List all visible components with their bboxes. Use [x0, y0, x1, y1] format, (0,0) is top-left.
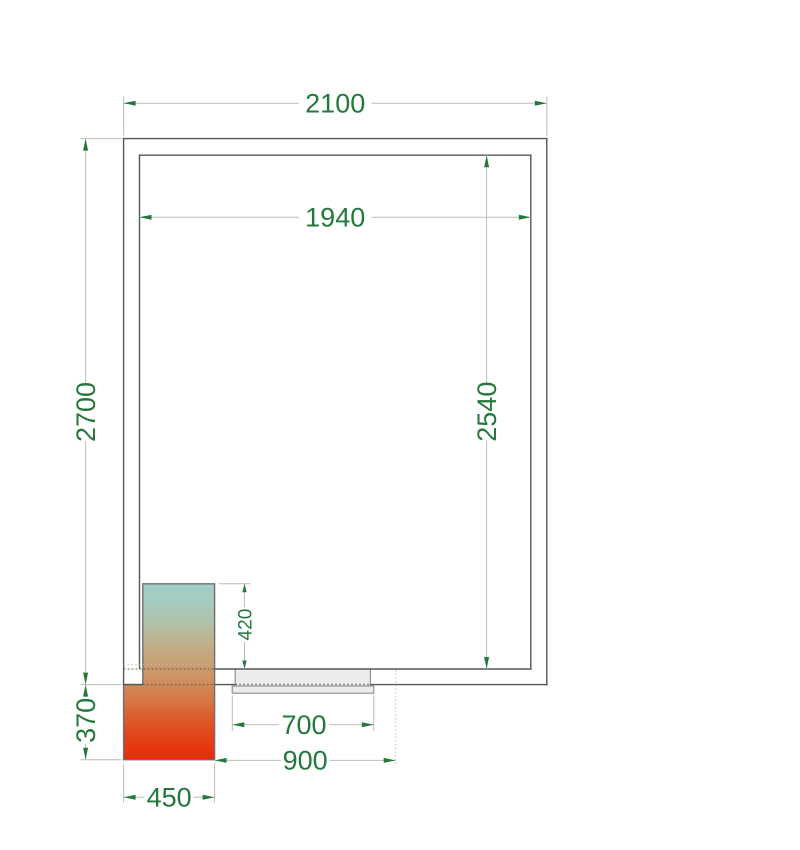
svg-text:420: 420 [235, 609, 256, 641]
svg-text:700: 700 [281, 710, 326, 740]
svg-text:370: 370 [71, 698, 101, 743]
svg-text:2540: 2540 [472, 382, 502, 442]
svg-text:2700: 2700 [71, 382, 101, 442]
svg-text:1940: 1940 [305, 203, 365, 233]
svg-text:450: 450 [147, 783, 192, 813]
svg-text:2100: 2100 [305, 89, 365, 119]
svg-text:900: 900 [283, 746, 328, 776]
